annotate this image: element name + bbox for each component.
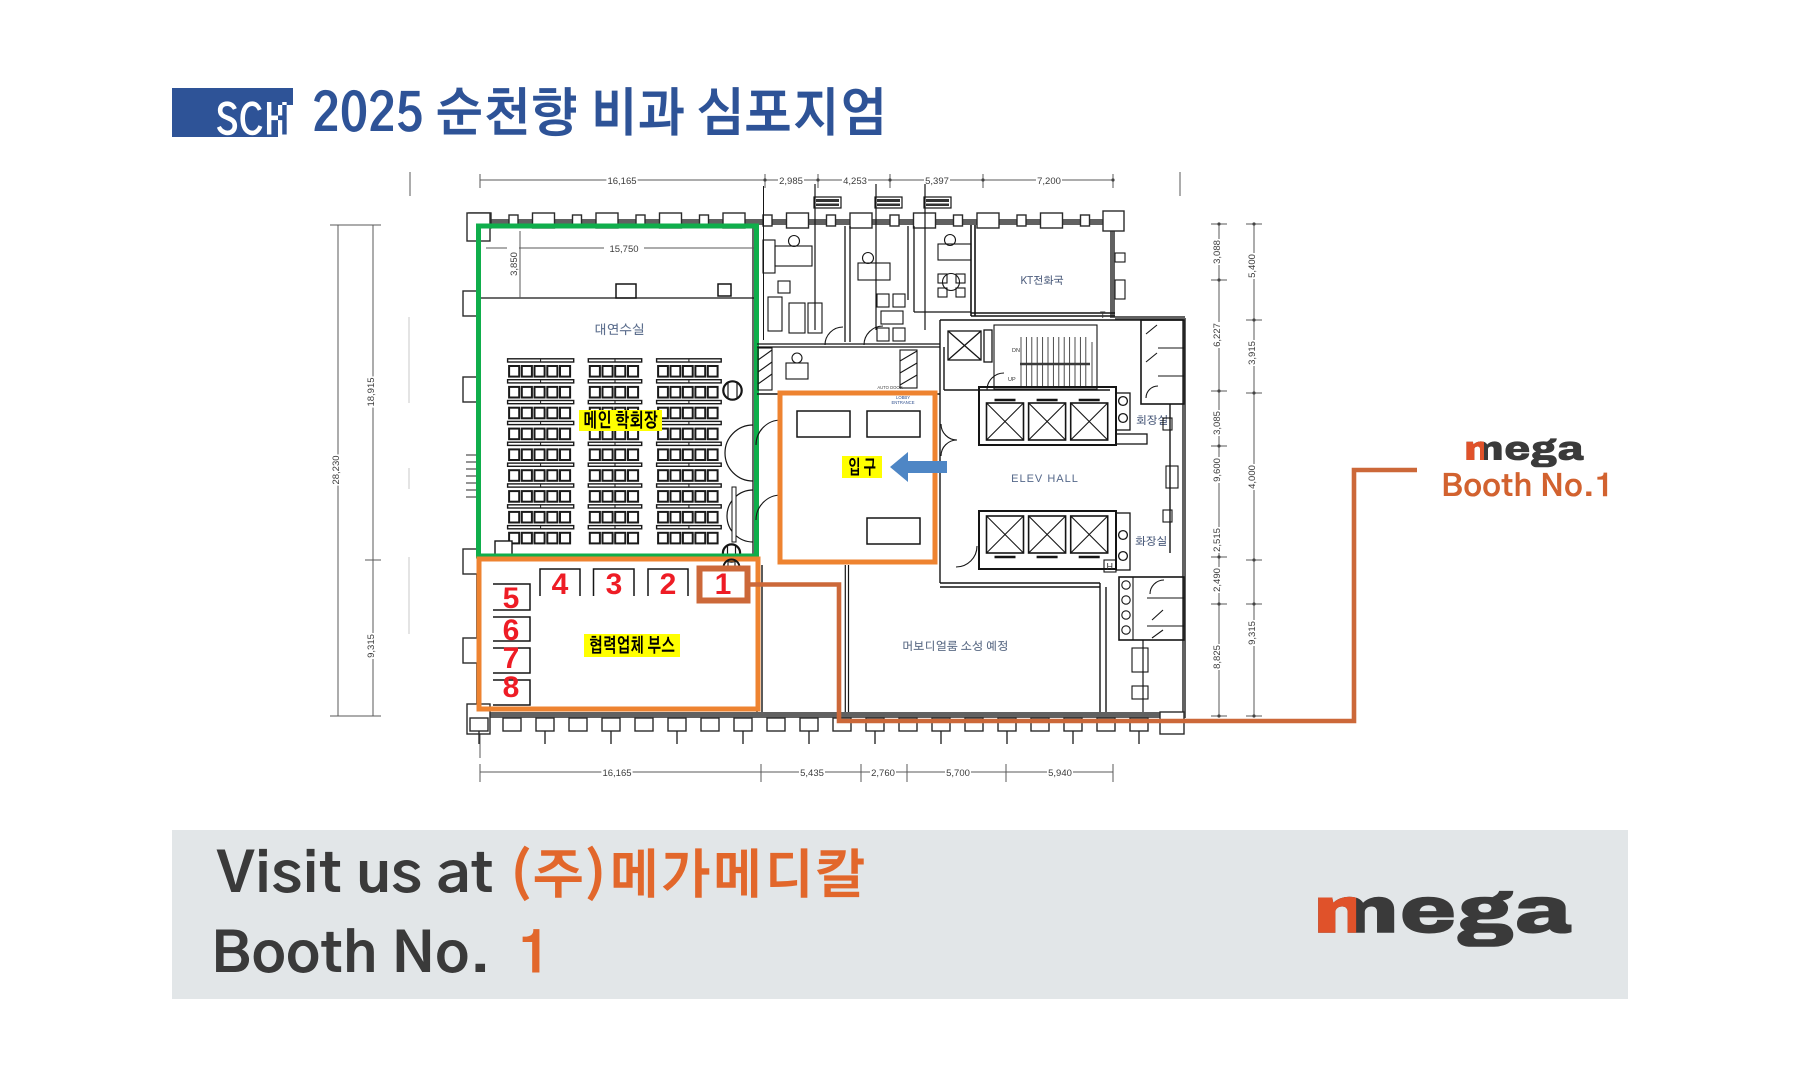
svg-text:9,315: 9,315 xyxy=(1247,621,1258,645)
svg-text:16,165: 16,165 xyxy=(607,176,636,187)
svg-text:5,397: 5,397 xyxy=(925,176,949,187)
svg-text:4: 4 xyxy=(552,568,569,601)
svg-text:4,253: 4,253 xyxy=(843,176,867,187)
svg-text:AUTO DOOR: AUTO DOOR xyxy=(877,385,902,390)
svg-text:T: T xyxy=(1100,310,1106,320)
svg-text:28,230: 28,230 xyxy=(331,455,342,484)
svg-text:3,850: 3,850 xyxy=(509,252,520,276)
svg-text:2: 2 xyxy=(660,568,677,601)
svg-text:3,085: 3,085 xyxy=(1212,411,1223,435)
svg-text:5,435: 5,435 xyxy=(800,768,824,779)
svg-text:H: H xyxy=(1107,562,1114,572)
svg-text:16,165: 16,165 xyxy=(602,768,631,779)
svg-text:3: 3 xyxy=(606,568,623,601)
svg-text:2,760: 2,760 xyxy=(871,768,895,779)
svg-text:5,400: 5,400 xyxy=(1247,254,1258,278)
svg-text:2,985: 2,985 xyxy=(779,176,803,187)
svg-text:ELEV HALL: ELEV HALL xyxy=(1011,473,1079,485)
svg-text:15,750: 15,750 xyxy=(609,244,638,255)
svg-text:3,088: 3,088 xyxy=(1212,240,1223,264)
svg-text:UP: UP xyxy=(1008,377,1016,383)
svg-text:4,000: 4,000 xyxy=(1247,465,1258,489)
svg-text:5: 5 xyxy=(503,582,520,615)
svg-text:8,825: 8,825 xyxy=(1212,645,1223,669)
svg-text:3,915: 3,915 xyxy=(1247,341,1258,365)
svg-text:9,600: 9,600 xyxy=(1212,458,1223,482)
svg-text:6,227: 6,227 xyxy=(1212,323,1223,347)
svg-text:DN: DN xyxy=(1012,348,1020,354)
svg-text:8: 8 xyxy=(503,671,520,704)
svg-text:ENTRANCE: ENTRANCE xyxy=(891,400,914,405)
svg-text:5,940: 5,940 xyxy=(1048,768,1072,779)
svg-text:18,915: 18,915 xyxy=(366,377,377,406)
svg-text:5,700: 5,700 xyxy=(946,768,970,779)
svg-text:2,515: 2,515 xyxy=(1212,528,1223,552)
svg-text:9,315: 9,315 xyxy=(366,634,377,658)
svg-text:1: 1 xyxy=(715,568,732,601)
svg-text:7,200: 7,200 xyxy=(1037,176,1061,187)
svg-text:2,490: 2,490 xyxy=(1212,568,1223,592)
